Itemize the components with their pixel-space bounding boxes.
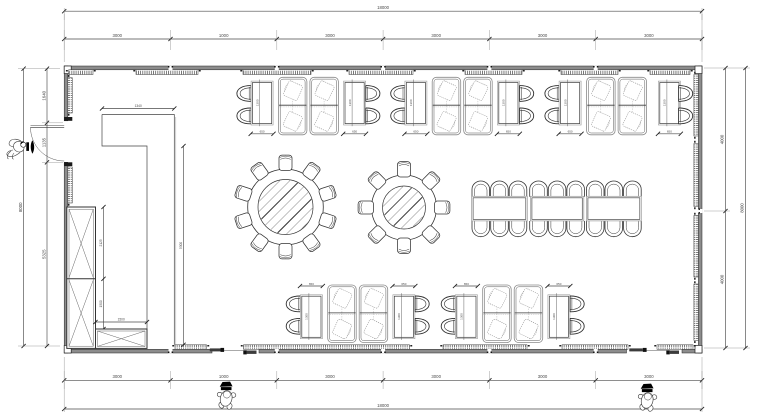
svg-text:3000: 3000 bbox=[113, 374, 123, 379]
svg-text:650: 650 bbox=[309, 282, 314, 286]
svg-text:650: 650 bbox=[352, 130, 357, 134]
svg-text:3000: 3000 bbox=[644, 33, 654, 38]
svg-text:650: 650 bbox=[568, 130, 573, 134]
svg-text:18000: 18000 bbox=[377, 403, 390, 408]
svg-text:3000: 3000 bbox=[644, 374, 654, 379]
svg-text:650: 650 bbox=[464, 282, 469, 286]
svg-text:650: 650 bbox=[506, 130, 511, 134]
svg-text:5325: 5325 bbox=[41, 249, 46, 259]
svg-text:1000: 1000 bbox=[219, 374, 229, 379]
svg-text:3000: 3000 bbox=[325, 374, 335, 379]
svg-text:2125: 2125 bbox=[99, 239, 103, 246]
svg-text:4000: 4000 bbox=[720, 274, 725, 284]
svg-text:8000: 8000 bbox=[18, 202, 23, 212]
svg-text:1640: 1640 bbox=[41, 90, 46, 100]
svg-text:5300: 5300 bbox=[179, 242, 183, 249]
svg-text:8000: 8000 bbox=[740, 203, 745, 213]
svg-text:650: 650 bbox=[413, 130, 418, 134]
svg-text:1500: 1500 bbox=[118, 318, 125, 322]
svg-text:4000: 4000 bbox=[720, 134, 725, 144]
svg-text:3000: 3000 bbox=[538, 374, 548, 379]
svg-text:3000: 3000 bbox=[113, 33, 123, 38]
svg-text:3000: 3000 bbox=[431, 374, 441, 379]
svg-text:650: 650 bbox=[556, 282, 561, 286]
svg-text:1135: 1135 bbox=[41, 137, 46, 147]
svg-text:650: 650 bbox=[667, 130, 672, 134]
svg-text:1000: 1000 bbox=[219, 33, 229, 38]
svg-text:1340: 1340 bbox=[135, 104, 142, 108]
svg-text:3000: 3000 bbox=[325, 33, 335, 38]
svg-text:3000: 3000 bbox=[538, 33, 548, 38]
svg-text:1500: 1500 bbox=[99, 300, 103, 307]
svg-text:650: 650 bbox=[401, 282, 406, 286]
svg-text:650: 650 bbox=[260, 130, 265, 134]
svg-text:3000: 3000 bbox=[431, 33, 441, 38]
svg-text:18000: 18000 bbox=[377, 5, 390, 10]
